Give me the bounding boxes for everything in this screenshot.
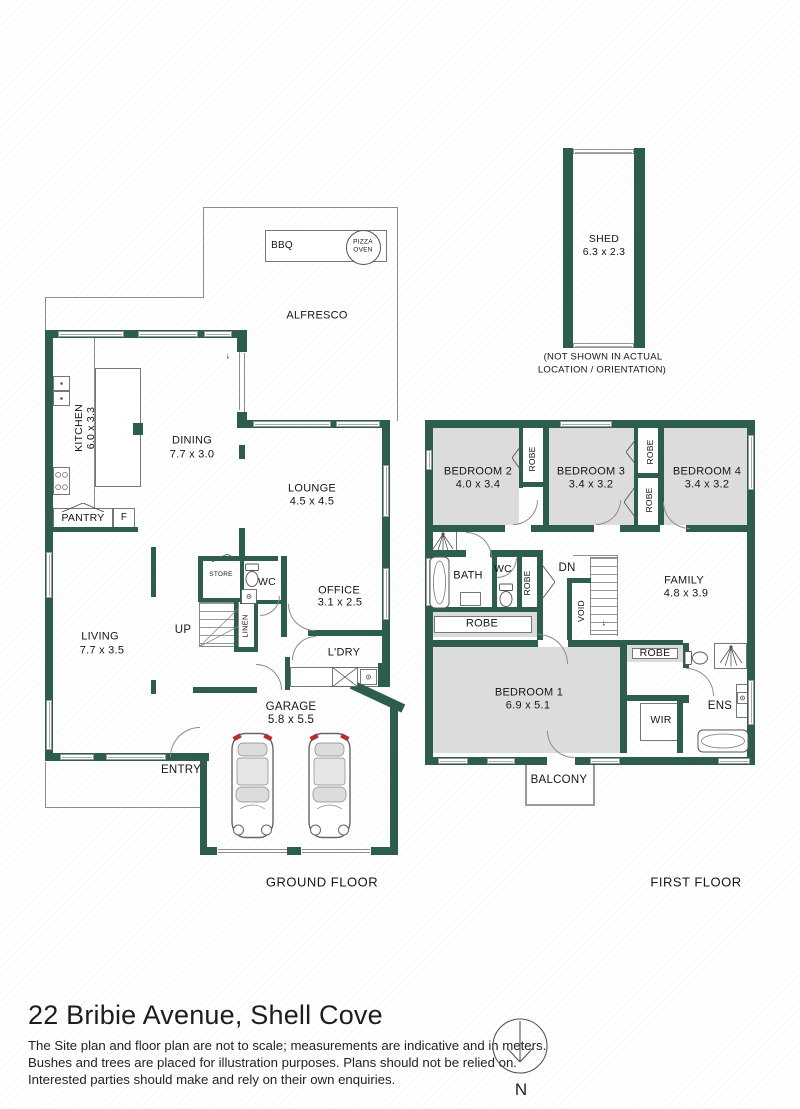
plan-label-lounge: LOUNGE (288, 483, 336, 496)
tub-icon (697, 729, 749, 753)
wall-segment (425, 525, 755, 532)
window (748, 435, 754, 490)
door-arc (686, 668, 714, 696)
window (60, 754, 94, 760)
plan-label-5-8-x-5-5: 5.8 x 5.5 (268, 714, 314, 728)
wall-segment (151, 547, 156, 597)
wall-segment (490, 550, 543, 557)
outline-line (45, 297, 203, 298)
outline-line (45, 297, 46, 331)
chev-icon (212, 549, 242, 557)
plan-label-void: VOID (576, 600, 586, 622)
plan-label-ens: ENS (708, 700, 732, 714)
floorplan-canvas: 22 Bribie Avenue, Shell Cove The Site pl… (0, 0, 800, 1109)
plan-label-dn: DN (558, 562, 575, 576)
outline-line (218, 852, 287, 853)
plan-label-robe: ROBE (640, 647, 671, 659)
tub-icon (429, 556, 450, 609)
north-compass-icon (490, 1016, 550, 1076)
wall-segment (567, 578, 591, 583)
wall-segment (627, 695, 683, 701)
window (573, 343, 634, 348)
plan-label-store: STORE (209, 571, 233, 579)
wall-segment (627, 640, 683, 645)
wall-segment (234, 647, 258, 652)
shower-icon (718, 644, 744, 668)
door-arc (256, 664, 282, 690)
sink2-icon (53, 376, 70, 406)
outline-line (203, 207, 398, 208)
plan-label-entry: ENTRY (161, 764, 201, 778)
window (58, 331, 124, 337)
toilet-icon (684, 650, 708, 666)
plan-label-wc: WC (494, 563, 512, 575)
door-opening (505, 525, 531, 532)
window (383, 568, 389, 620)
window (106, 754, 166, 760)
plan-label-family: FAMILY (664, 575, 704, 588)
plan-label-f: F (121, 512, 127, 524)
plan-label-bedroom-1: BEDROOM 1 (495, 687, 563, 700)
wall-segment (193, 687, 257, 693)
plan-label-robe: ROBE (527, 446, 537, 471)
wall-segment (390, 704, 398, 855)
wall-segment (634, 148, 645, 348)
outline-line (218, 849, 287, 850)
wall-segment (287, 847, 301, 855)
wall-segment (53, 527, 138, 532)
bench (460, 592, 481, 606)
plan-label-robe: ROBE (644, 487, 654, 512)
wall-segment (198, 556, 203, 602)
wall-segment (285, 657, 290, 690)
wall-segment (151, 680, 156, 694)
window (383, 465, 389, 517)
first-floor-label: FIRST FLOOR (650, 875, 741, 890)
plan-label-l-dry: L'DRY (328, 647, 361, 660)
plan-label-robe: ROBE (466, 618, 498, 631)
plan-label-4-5-x-4-5: 4.5 x 4.5 (290, 496, 334, 509)
chev-icon (624, 487, 635, 517)
car-icon (307, 731, 352, 840)
toilet-icon (498, 583, 514, 607)
plan-label-pantry: PANTRY (61, 512, 104, 524)
plan-label-bedroom-2: BEDROOM 2 (444, 466, 512, 479)
wall-segment (200, 755, 207, 855)
plan-label-kitchen: KITCHEN (73, 404, 85, 452)
plan-label-alfresco: ALFRESCO (286, 310, 347, 323)
wall-segment (281, 556, 287, 637)
window (748, 680, 754, 725)
plan-label-dining: DINING (172, 435, 212, 448)
disclaimer-line-2: Bushes and trees are placed for illustra… (28, 1054, 517, 1071)
window (573, 149, 634, 154)
plan-label-4-8-x-3-9: 4.8 x 3.9 (664, 588, 708, 601)
window (590, 758, 620, 764)
ground-floor-label: GROUND FLOOR (266, 875, 378, 890)
outline-line (203, 207, 204, 298)
wall-segment (543, 428, 549, 525)
outline-line (244, 353, 245, 413)
plan-label-arrow: ↓ (602, 618, 607, 629)
wall-segment (425, 640, 627, 647)
disclaimer-line-3: Interested parties should make and rely … (28, 1071, 395, 1088)
chev-icon (626, 438, 637, 466)
basin-icon (241, 589, 257, 604)
plan-label-6-9-x-5-1: 6.9 x 5.1 (506, 700, 550, 713)
door-opening (594, 525, 620, 532)
plan-label-robe: ROBE (522, 570, 532, 595)
wall-segment (133, 423, 143, 435)
plan-label-balcony: BALCONY (531, 774, 588, 788)
door-arc (538, 634, 568, 664)
wall-segment (563, 148, 573, 348)
window (138, 331, 198, 337)
plan-label-not-shown-in-actual: (NOT SHOWN IN ACTUAL (544, 351, 663, 362)
plan-label-4-0-x-3-4: 4.0 x 3.4 (456, 479, 500, 492)
plan-label-3-1-x-2-5: 3.1 x 2.5 (318, 597, 362, 610)
xbox-icon (332, 667, 358, 687)
window (336, 421, 380, 427)
plan-label-7-7-x-3-0: 7.7 x 3.0 (170, 449, 214, 462)
outline-line (239, 348, 240, 410)
window (253, 421, 331, 427)
wall-segment (683, 695, 689, 703)
plan-label-6-0-x-3-3: 6.0 x 3.3 (85, 407, 97, 450)
outline-line (397, 207, 398, 421)
outline-line (45, 807, 201, 808)
plan-label-wc: WC (258, 576, 276, 588)
wall-segment (200, 847, 217, 855)
plan-label-3-4-x-3-2: 3.4 x 3.2 (569, 479, 613, 492)
plan-label-robe: ROBE (645, 439, 655, 464)
plan-label-location-orientation: LOCATION / ORIENTATION) (538, 364, 666, 375)
door-arc (466, 532, 492, 558)
plan-label-linen: LINEN (242, 614, 251, 637)
door-arc (260, 596, 280, 616)
chev-icon (62, 499, 104, 508)
stove-icon (53, 467, 70, 495)
window (718, 758, 750, 764)
wall-segment (308, 630, 388, 636)
plan-label-garage: GARAGE (266, 701, 317, 715)
plan-label-6-3-x-2-3: 6.3 x 2.3 (583, 246, 626, 258)
basin-icon (737, 691, 748, 703)
wall-segment (634, 473, 662, 478)
door-arc (170, 727, 200, 757)
plan-label-wir: WIR (650, 714, 671, 726)
window (560, 421, 612, 427)
page-title: 22 Bribie Avenue, Shell Cove (28, 1000, 383, 1031)
wall-segment (254, 602, 258, 652)
door-opening (547, 757, 575, 765)
wall-segment (378, 663, 390, 687)
outline-line (45, 762, 46, 808)
window (487, 758, 515, 764)
wall-segment (239, 445, 245, 459)
diag-icon (199, 602, 239, 647)
window (204, 331, 232, 337)
plan-label-shed: SHED (589, 233, 619, 245)
plan-label-bedroom-4: BEDROOM 4 (673, 466, 741, 479)
door-arc (288, 604, 315, 631)
basin-icon (360, 669, 377, 685)
plan-label-arrow: ↓ (226, 351, 231, 362)
window (438, 758, 468, 764)
plan-label-pizza-oven: PIZZA OVEN (353, 238, 373, 253)
car-icon (230, 731, 275, 840)
outline-line (302, 849, 370, 850)
plan-label-bedroom-3: BEDROOM 3 (557, 466, 625, 479)
north-label: N (515, 1080, 527, 1100)
window (46, 700, 52, 750)
plan-label-3-4-x-3-2: 3.4 x 3.2 (685, 479, 729, 492)
window (426, 450, 432, 470)
wall-segment (519, 482, 547, 487)
disclaimer-line-1: The Site plan and floor plan are not to … (28, 1037, 546, 1054)
plan-label-bath: BATH (453, 570, 483, 583)
wall-segment (567, 578, 572, 642)
door-arc (292, 636, 316, 660)
shower-icon (431, 531, 455, 554)
outline-line (573, 555, 618, 556)
wall-segment (677, 701, 683, 753)
chev-icon (512, 443, 523, 473)
door-arc (547, 731, 574, 758)
outline-line (302, 852, 370, 853)
chev-icon (543, 566, 555, 598)
plan-label-7-7-x-3-5: 7.7 x 3.5 (80, 645, 124, 658)
plan-label-bbq: BBQ (271, 240, 293, 252)
window (46, 552, 52, 598)
plan-label-living: LIVING (81, 631, 119, 644)
wall-segment (45, 330, 53, 761)
plan-label-up: UP (175, 624, 191, 638)
wall-segment (620, 643, 627, 753)
door-arc (513, 500, 538, 525)
wall-segment (237, 330, 247, 352)
